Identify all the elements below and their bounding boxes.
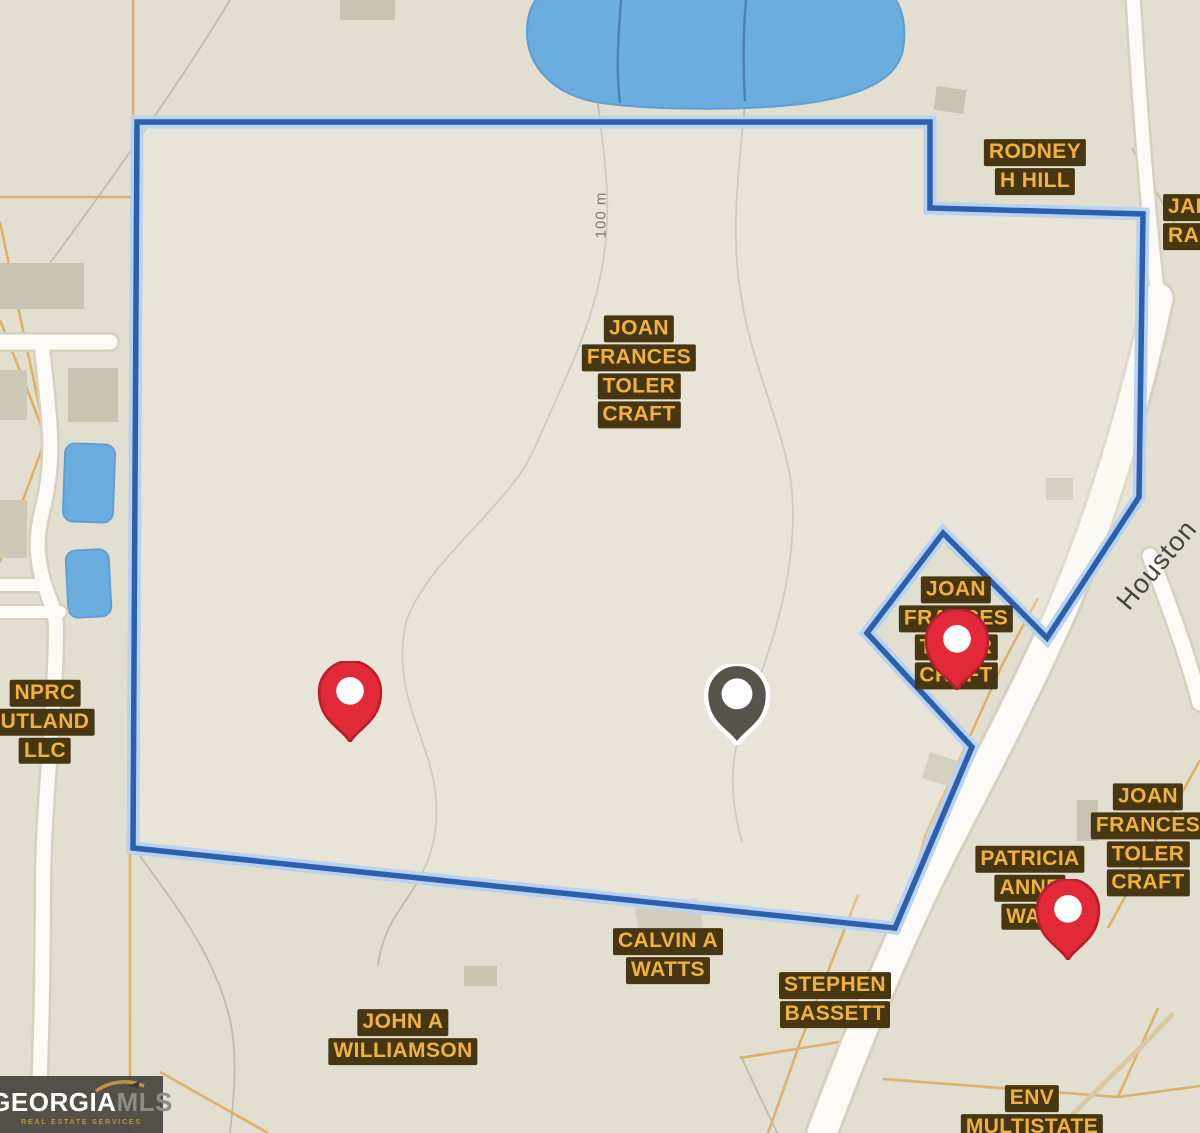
parcel-label-line: RAN	[1163, 223, 1200, 250]
parcel-label-line: H HILL	[995, 168, 1075, 195]
parcel-label-line: FRANCES	[582, 344, 696, 371]
parcel-label-line: BASSETT	[780, 1001, 891, 1028]
logo-tagline: REAL ESTATE SERVICES	[0, 1119, 163, 1126]
map-pin-red-east-icon[interactable]	[924, 609, 990, 690]
parcel-label-nprc-utland-llc: NPRC UTLAND LLC	[0, 679, 94, 765]
parcel-label-env-multistate: ENV MULTISTATE	[961, 1084, 1103, 1133]
parcel-label-john-a-williamson: JOHN A WILLIAMSON	[328, 1008, 477, 1066]
georgia-mls-logo: GEORGIA MLS REAL ESTATE SERVICES	[0, 1076, 163, 1133]
parcel-label-line: LLC	[19, 737, 71, 764]
parcel-label-line: JAI	[1163, 194, 1200, 221]
map-pin-gray-center-icon[interactable]	[704, 664, 770, 745]
map-pin-red-west-icon[interactable]	[317, 661, 383, 742]
parcel-label-line: UTLAND	[0, 709, 94, 736]
map-canvas[interactable]: 100 m Houston RODNEY H HILL JAI RAN JOAN…	[0, 0, 1200, 1133]
parcel-label-joan-frances-toler-craft-right: JOAN FRANCES TOLER CRAFT	[1091, 782, 1200, 897]
parcel-label-line: STEPHEN	[779, 972, 891, 999]
parcel-label-line: JOAN	[1113, 783, 1183, 810]
parcel-label-line: CALVIN A	[613, 928, 723, 955]
parcel-label-line: MULTISTATE	[961, 1114, 1103, 1133]
logo-swoosh-icon	[94, 1078, 146, 1093]
parcel-label-stephen-bassett: STEPHEN BASSETT	[779, 971, 891, 1029]
parcel-label-line: CRAFT	[597, 402, 680, 429]
parcel-label-line: WATTS	[626, 957, 710, 984]
parcel-label-line: WILLIAMSON	[328, 1038, 477, 1065]
parcel-label-jai-ran: JAI RAN	[1163, 193, 1200, 251]
parcel-label-line: PATRICIA	[975, 846, 1084, 873]
parcel-label-calvin-a-watts: CALVIN A WATTS	[613, 927, 723, 985]
parcel-label-line: TOLER	[1107, 841, 1190, 868]
parcel-label-line: JOHN A	[358, 1009, 449, 1036]
parcel-label-line: NPRC	[9, 680, 80, 707]
parcel-label-rodney-h-hill: RODNEY H HILL	[984, 138, 1086, 196]
parcel-label-line: JOAN	[921, 576, 991, 603]
parcel-label-joan-frances-toler-craft-center: JOAN FRANCES TOLER CRAFT	[582, 314, 696, 429]
parcel-label-line: FRANCES	[1091, 812, 1200, 839]
parcel-label-line: RODNEY	[984, 139, 1086, 166]
parcel-label-line: CRAFT	[1106, 870, 1189, 897]
parcel-label-line: JOAN	[604, 315, 674, 342]
parcel-label-line: ENV	[1005, 1085, 1059, 1112]
map-pin-red-southeast-icon[interactable]	[1035, 879, 1101, 960]
parcel-label-line: TOLER	[598, 373, 681, 400]
contour-elevation-label: 100 m	[593, 192, 610, 239]
